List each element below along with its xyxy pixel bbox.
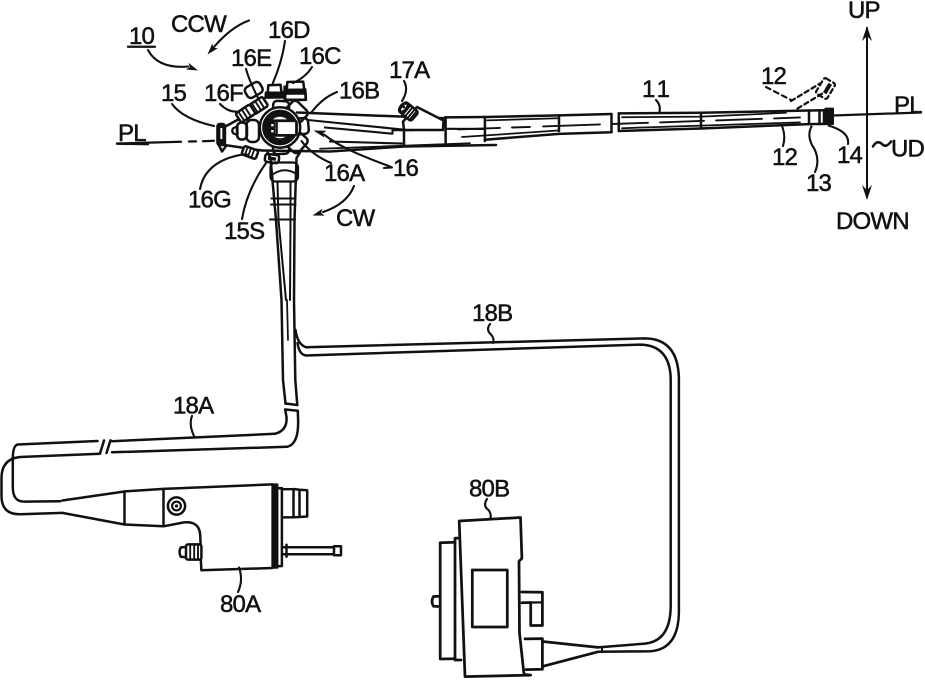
svg-text:16A: 16A <box>324 160 365 187</box>
svg-text:PL: PL <box>894 92 922 119</box>
svg-text:80B: 80B <box>469 476 509 503</box>
svg-text:15: 15 <box>161 80 187 107</box>
svg-text:16: 16 <box>393 155 419 182</box>
svg-text:12: 12 <box>761 63 787 90</box>
svg-text:80A: 80A <box>220 591 261 618</box>
svg-text:CCW: CCW <box>171 11 227 38</box>
svg-text:16D: 16D <box>268 17 310 44</box>
svg-text:15S: 15S <box>224 218 264 245</box>
svg-text:16G: 16G <box>188 187 231 214</box>
svg-text:13: 13 <box>806 170 832 197</box>
svg-text:16C: 16C <box>299 43 341 70</box>
svg-text:18A: 18A <box>173 393 214 420</box>
svg-text:UD: UD <box>891 136 925 163</box>
svg-text:12: 12 <box>772 144 798 171</box>
svg-text:16E: 16E <box>231 45 271 72</box>
svg-text:CW: CW <box>336 205 376 232</box>
svg-text:14: 14 <box>837 142 863 169</box>
svg-text:16F: 16F <box>204 80 243 107</box>
svg-text:UP: UP <box>848 0 880 24</box>
svg-text:17A: 17A <box>389 57 430 84</box>
svg-text:18B: 18B <box>472 300 512 327</box>
svg-text:DOWN: DOWN <box>836 208 909 235</box>
svg-text:16B: 16B <box>339 78 379 105</box>
svg-text:11: 11 <box>642 76 673 103</box>
